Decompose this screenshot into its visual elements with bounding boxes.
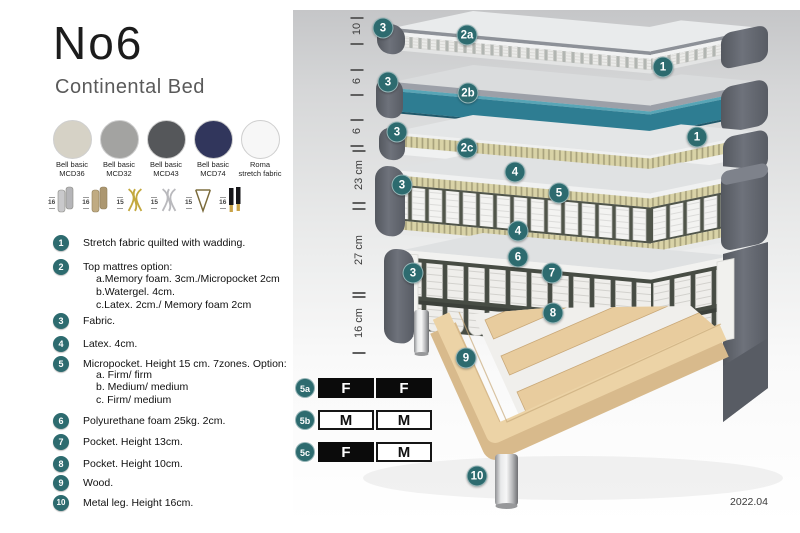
- layer-badge-3: 3: [387, 122, 408, 143]
- leg-height-label: 15: [116, 195, 123, 210]
- measurement-tick: [353, 352, 366, 354]
- fabric-swatch-circle: [194, 120, 233, 159]
- firmness-cell: M: [376, 442, 432, 462]
- firmness-row-badge: 5a: [295, 378, 315, 398]
- firmness-cell: M: [376, 410, 432, 430]
- firmness-row-5b: 5bMM: [295, 410, 432, 430]
- measurement-label: 23 cm: [353, 160, 365, 190]
- leg-option: 15: [116, 186, 144, 219]
- list-item-number-badge: 2: [53, 259, 69, 275]
- layer-badge-1: 1: [653, 57, 674, 78]
- list-item-number-badge: 8: [53, 456, 69, 472]
- measurement-tick: [351, 145, 364, 147]
- measurement-tick: [353, 202, 366, 204]
- fabric-swatch-circle: [147, 120, 186, 159]
- layer-badge-10: 10: [467, 466, 488, 487]
- leg-icon-hairpin: [193, 186, 213, 219]
- measurement-tick: [351, 94, 364, 96]
- product-subtitle: Continental Bed: [55, 76, 205, 99]
- leg-option: 16: [219, 186, 243, 219]
- firmness-row-5a: 5aFF: [295, 378, 432, 398]
- leg-options-row: 161615151516: [48, 186, 243, 219]
- fabric-swatch-label: Bell basic MCD32: [103, 161, 135, 178]
- leg-height-label: 16: [219, 195, 226, 210]
- measurement-label: 6: [351, 78, 363, 84]
- list-subitem: b.Watergel. 4cm.: [96, 286, 175, 298]
- list-item-text: Pocket. Height 13cm.: [83, 434, 183, 449]
- version-label: 2022.04: [698, 496, 768, 508]
- list-item: 6Polyurethane foam 25kg. 2cm.: [53, 413, 225, 429]
- product-title: No6: [53, 16, 143, 70]
- fabric-swatch: Bell basic MCD43: [144, 120, 188, 178]
- fabric-swatch-circle: [53, 120, 92, 159]
- list-item-text: Stretch fabric quilted with wadding.: [83, 235, 245, 250]
- firmness-cell: F: [318, 378, 374, 398]
- fabric-swatch-row: Bell basic MCD36Bell basic MCD32Bell bas…: [50, 120, 282, 178]
- leg-height-label: 15: [151, 195, 158, 210]
- leg-icon-cone-black-gold: [227, 186, 243, 219]
- firmness-cell: F: [318, 442, 374, 462]
- list-subitem: c. Firm/ medium: [96, 394, 171, 406]
- leg-option: 16: [48, 186, 76, 219]
- layer-badge-8: 8: [543, 303, 564, 324]
- layer-badge-3: 3: [392, 175, 413, 196]
- fabric-swatch-label: Roma stretch fabric: [239, 161, 282, 178]
- leg-icon-cylinder-silver: [56, 186, 76, 219]
- list-item-number-badge: 5: [53, 356, 69, 372]
- list-item: 7Pocket. Height 13cm.: [53, 434, 183, 450]
- leg-icon-twist-gold: [125, 186, 145, 219]
- measurement-label: 27 cm: [353, 235, 365, 265]
- firmness-row-badge: 5c: [295, 442, 315, 462]
- layer-badge-9: 9: [456, 348, 477, 369]
- layer-badge-4: 4: [508, 221, 529, 242]
- firmness-cell: F: [376, 378, 432, 398]
- layer-badge-5: 5: [549, 183, 570, 204]
- list-item-number-badge: 7: [53, 434, 69, 450]
- layer-badge-2b: 2b: [458, 83, 479, 104]
- fabric-swatch-label: Bell basic MCD74: [197, 161, 229, 178]
- list-item: 10Metal leg. Height 16cm.: [53, 495, 193, 511]
- list-item-number-badge: 3: [53, 313, 69, 329]
- list-subitem: b. Medium/ medium: [96, 381, 188, 393]
- metal-leg-front: [495, 454, 518, 509]
- firmness-cells: MM: [318, 410, 432, 430]
- leg-icon-twist-silver: [159, 186, 179, 219]
- firmness-cell: M: [318, 410, 374, 430]
- list-item: 9Wood.: [53, 475, 113, 491]
- leg-height-label: 16: [82, 195, 89, 210]
- leg-height-label: 16: [48, 195, 55, 210]
- list-item: 5Micropocket. Height 15 cm. 7zones. Opti…: [53, 356, 287, 372]
- leg-option: 15: [151, 186, 179, 219]
- list-item: 1Stretch fabric quilted with wadding.: [53, 235, 245, 251]
- layer-badge-4: 4: [505, 162, 526, 183]
- measurement-tick: [351, 17, 364, 19]
- list-item-number-badge: 9: [53, 475, 69, 491]
- list-item-number-badge: 6: [53, 413, 69, 429]
- list-item: 4Latex. 4cm.: [53, 336, 137, 352]
- firmness-cells: FF: [318, 378, 432, 398]
- layer-badge-7: 7: [542, 263, 563, 284]
- list-item-text: Top mattres option:: [83, 259, 172, 274]
- leg-option: 15: [185, 186, 213, 219]
- firmness-row-badge: 5b: [295, 410, 315, 430]
- fabric-swatch: Bell basic MCD32: [97, 120, 141, 178]
- floor-shadow: [363, 456, 783, 500]
- list-item: 8Pocket. Height 10cm.: [53, 456, 183, 472]
- layer-badge-1: 1: [687, 127, 708, 148]
- metal-leg-back: [414, 310, 429, 356]
- list-subitem: a.Memory foam. 3cm./Micropocket 2cm: [96, 273, 280, 285]
- list-item-number-badge: 10: [53, 495, 69, 511]
- measurement-tick: [353, 292, 366, 294]
- measurement-label: 6: [351, 128, 363, 134]
- measurement-tick: [351, 43, 364, 45]
- fabric-swatch-label: Bell basic MCD43: [150, 161, 182, 178]
- fabric-swatch: Roma stretch fabric: [238, 120, 282, 178]
- list-item-text: Polyurethane foam 25kg. 2cm.: [83, 413, 225, 428]
- measurement-tick: [351, 119, 364, 121]
- fabric-swatch-circle: [100, 120, 139, 159]
- list-subitem: c.Latex. 2cm./ Memory foam 2cm: [96, 299, 251, 311]
- layer-badge-3: 3: [378, 72, 399, 93]
- list-item-number-badge: 4: [53, 336, 69, 352]
- list-item-text: Latex. 4cm.: [83, 336, 137, 351]
- leg-icon-cylinder-bronze: [90, 186, 110, 219]
- list-item: 3Fabric.: [53, 313, 115, 329]
- measurement-tick: [353, 150, 366, 152]
- measurement-tick: [351, 69, 364, 71]
- layer-badge-2c: 2c: [457, 138, 478, 159]
- list-item-number-badge: 1: [53, 235, 69, 251]
- product-infographic: No6 Continental Bed Bell basic MCD36Bell…: [0, 0, 800, 533]
- list-item-text: Wood.: [83, 475, 113, 490]
- fabric-swatch-label: Bell basic MCD36: [56, 161, 88, 178]
- list-item-text: Pocket. Height 10cm.: [83, 456, 183, 471]
- measurement-label: 16 cm: [353, 308, 365, 338]
- measurement-tick: [353, 208, 366, 210]
- list-item-text: Fabric.: [83, 313, 115, 328]
- firmness-row-5c: 5cFM: [295, 442, 432, 462]
- fabric-swatch: Bell basic MCD36: [50, 120, 94, 178]
- layer-badge-6: 6: [508, 247, 529, 268]
- fabric-swatch-circle: [241, 120, 280, 159]
- layer-badge-3: 3: [373, 18, 394, 39]
- list-subitem: a. Firm/ firm: [96, 369, 152, 381]
- leg-option: 16: [82, 186, 110, 219]
- firmness-cells: FM: [318, 442, 432, 462]
- diagram-panel: 106623 cm27 cm16 cm 32a132b32c1345436789…: [293, 10, 800, 523]
- leg-height-label: 15: [185, 195, 192, 210]
- layer-topper-2a: [377, 11, 768, 74]
- fabric-swatch: Bell basic MCD74: [191, 120, 235, 178]
- layer-badge-2a: 2a: [457, 25, 478, 46]
- list-item-text: Metal leg. Height 16cm.: [83, 495, 193, 510]
- layer-badge-3: 3: [403, 263, 424, 284]
- measurement-tick: [353, 296, 366, 298]
- measurement-label: 10: [351, 23, 363, 35]
